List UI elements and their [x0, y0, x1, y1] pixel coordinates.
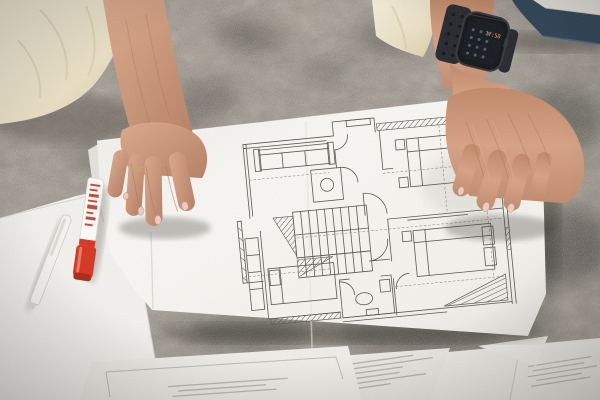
photo-vignette: [0, 0, 600, 400]
photo-canvas: 17:58: [0, 0, 600, 400]
photo-scene: 17:58: [0, 0, 600, 400]
